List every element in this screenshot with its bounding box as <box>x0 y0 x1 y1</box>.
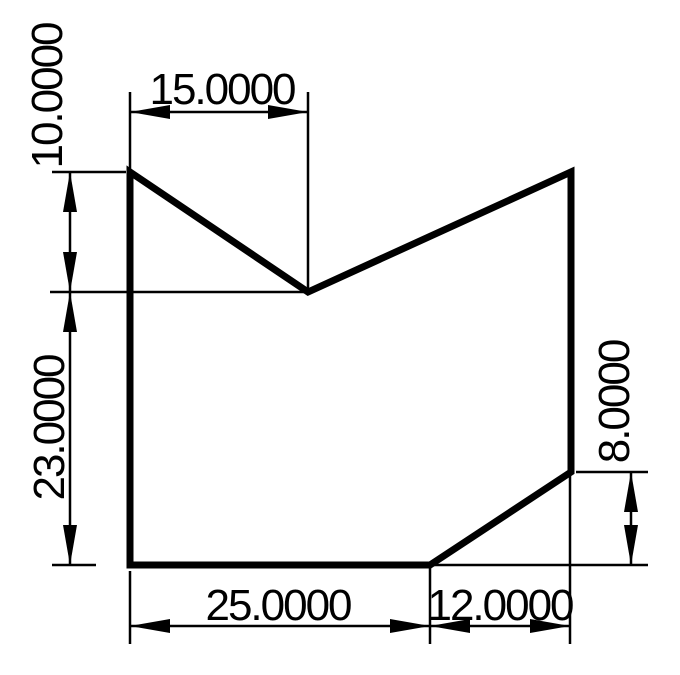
dim-label-lower-left-height: 23.0000 <box>25 355 74 501</box>
dimension-bottom-left-width: 25.0000 <box>130 567 430 644</box>
part-outline <box>130 172 571 565</box>
dim-label-upper-left-height: 10.0000 <box>23 23 72 169</box>
dim-label-bottom-right-width: 12.0000 <box>427 581 573 630</box>
technical-drawing-canvas: 15.0000 10.0000 23.0000 8.0000 <box>0 0 680 675</box>
dimension-bottom-right-width: 12.0000 <box>427 475 573 644</box>
arrowhead-right <box>390 619 430 633</box>
dimension-top-width: 15.0000 <box>130 65 308 291</box>
dimension-lower-left-height: 23.0000 <box>25 292 96 565</box>
arrowhead-up <box>63 172 77 212</box>
dim-label-bottom-left-width: 25.0000 <box>205 581 351 630</box>
dim-label-top-width: 15.0000 <box>149 65 295 114</box>
dimension-drawing: 15.0000 10.0000 23.0000 8.0000 <box>0 0 680 675</box>
arrowhead-up <box>63 292 77 332</box>
arrowhead-down <box>63 252 77 292</box>
dimension-upper-left-height: 10.0000 <box>23 23 307 292</box>
dimension-right-height: 8.0000 <box>432 340 648 565</box>
arrowhead-down <box>624 525 638 565</box>
dim-label-right-height: 8.0000 <box>590 340 639 463</box>
arrowhead-up <box>624 472 638 512</box>
arrowhead-down <box>63 525 77 565</box>
arrowhead-left <box>130 619 170 633</box>
